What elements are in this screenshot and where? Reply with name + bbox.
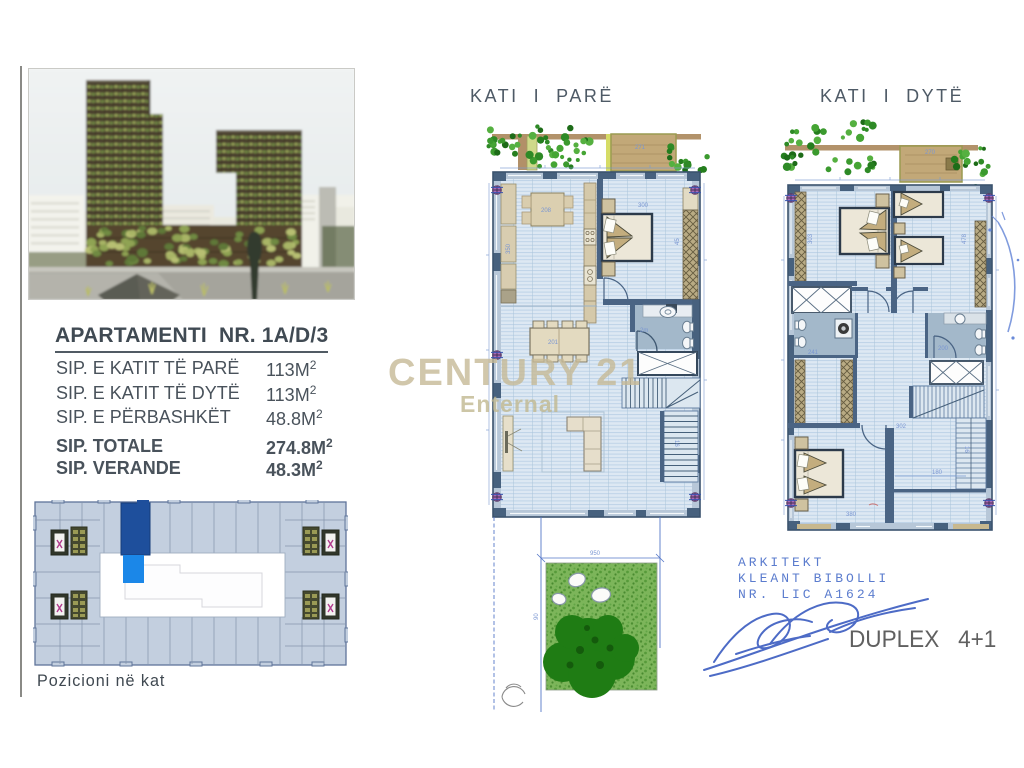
svg-text:302: 302 [896, 424, 907, 430]
svg-text:478: 478 [962, 233, 968, 244]
svg-text:350: 350 [506, 243, 512, 254]
svg-text:950: 950 [590, 551, 601, 557]
svg-text:270: 270 [925, 150, 936, 156]
svg-text:300: 300 [638, 203, 649, 209]
svg-text:208: 208 [541, 208, 552, 214]
svg-text:380: 380 [846, 512, 857, 518]
svg-text:16: 16 [673, 440, 679, 447]
svg-text:45: 45 [675, 238, 681, 245]
svg-text:201: 201 [548, 340, 559, 346]
svg-text:303: 303 [808, 233, 814, 244]
svg-text:180: 180 [932, 470, 943, 476]
svg-text:2m: 2m [640, 328, 648, 334]
svg-text:90: 90 [534, 613, 540, 620]
svg-text:271: 271 [635, 145, 646, 151]
svg-text:200: 200 [938, 346, 949, 352]
svg-text:16: 16 [963, 446, 969, 453]
